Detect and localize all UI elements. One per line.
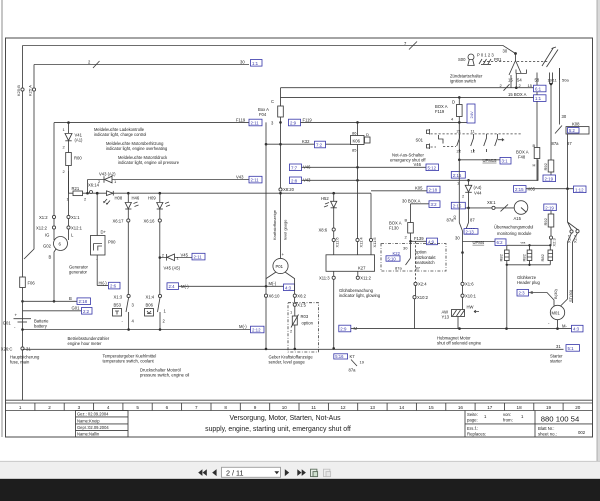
- svg-text:X6:2: X6:2: [297, 294, 306, 299]
- svg-text:X11:6: X11:6: [335, 237, 340, 248]
- svg-text:supply, engine, starting unit,: supply, engine, starting unit, emergancy…: [205, 426, 351, 433]
- svg-text:+: +: [15, 313, 18, 318]
- svg-text:G01: G01: [3, 321, 12, 326]
- svg-text:X12:1: X12:1: [71, 226, 83, 231]
- svg-text:option: option: [302, 320, 314, 325]
- svg-text:K05: K05: [415, 185, 423, 190]
- svg-text:2:2: 2:2: [83, 309, 90, 314]
- svg-text:H46: H46: [132, 196, 140, 201]
- svg-text:12: 12: [471, 148, 476, 153]
- svg-text:indicator light, engine oil pr: indicator light, engine oil pressure: [118, 160, 180, 165]
- svg-text:3: 3: [78, 405, 81, 410]
- svg-text:2:11: 2:11: [251, 121, 260, 126]
- svg-text:31: 31: [26, 346, 31, 351]
- svg-text:20: 20: [575, 405, 581, 410]
- svg-text:6:2: 6:2: [497, 240, 504, 245]
- svg-text:30: 30: [562, 114, 567, 119]
- svg-text:X6:17: X6:17: [113, 218, 125, 223]
- svg-text:G01: G01: [72, 306, 81, 311]
- svg-text:2:13: 2:13: [466, 229, 475, 234]
- svg-text:H: H: [533, 162, 536, 167]
- svg-text:30: 30: [455, 236, 460, 241]
- svg-text:P01: P01: [276, 264, 284, 269]
- svg-text:temperature switch, coolant: temperature switch, coolant: [103, 359, 155, 364]
- svg-text:22: 22: [457, 148, 462, 153]
- svg-text:V44: V44: [474, 191, 482, 196]
- svg-text:X11:3: X11:3: [319, 276, 330, 281]
- svg-text:(A4): (A4): [474, 185, 483, 190]
- svg-text:8: 8: [224, 405, 227, 410]
- svg-text:21: 21: [457, 128, 462, 133]
- svg-text:V46: V46: [303, 164, 311, 169]
- svg-text:engine hour meter: engine hour meter: [68, 341, 103, 346]
- svg-text:30 BOX A: 30 BOX A: [402, 199, 421, 204]
- svg-text:K27: K27: [358, 265, 366, 270]
- svg-text:sheet no.:: sheet no.:: [538, 432, 557, 437]
- svg-text:X1:6: X1:6: [465, 282, 474, 287]
- svg-text:P 0 1 2 3: P 0 1 2 3: [477, 53, 494, 58]
- svg-text:R82: R82: [540, 253, 545, 261]
- svg-text:5:10: 5:10: [388, 256, 397, 261]
- svg-text:5:12: 5:12: [428, 165, 437, 170]
- svg-text:Kraftstoffanzeige: Kraftstoffanzeige: [272, 209, 277, 240]
- svg-text:17: 17: [487, 405, 493, 410]
- svg-text:R03: R03: [301, 314, 309, 319]
- svg-text:7:2: 7:2: [316, 143, 323, 148]
- svg-text:B: B: [533, 143, 536, 148]
- svg-text:G02: G02: [43, 244, 52, 249]
- svg-text:starter: starter: [550, 359, 562, 364]
- svg-text:2:11: 2:11: [194, 255, 203, 260]
- svg-text:2:12: 2:12: [252, 328, 261, 333]
- svg-text:X6:16: X6:16: [144, 218, 156, 223]
- svg-text:R82: R82: [499, 253, 504, 261]
- svg-text:5:16: 5:16: [335, 354, 344, 359]
- svg-text:F48: F48: [518, 155, 526, 160]
- svg-text:Gepr.:02.09.2004: Gepr.:02.09.2004: [77, 425, 109, 430]
- svg-text:V43: V43: [236, 174, 244, 179]
- svg-text:R00: R00: [74, 156, 82, 161]
- svg-text:5:1: 5:1: [568, 346, 575, 351]
- svg-text:V43 (A2): V43 (A2): [99, 172, 116, 177]
- svg-text:10: 10: [282, 405, 288, 410]
- svg-text:Header plug: Header plug: [517, 280, 540, 285]
- svg-text:M(-): M(-): [239, 324, 247, 329]
- svg-text:V45 (A5): V45 (A5): [164, 266, 181, 271]
- svg-text:(A1): (A1): [75, 138, 84, 143]
- svg-text:B: B: [405, 217, 408, 222]
- svg-text:30: 30: [240, 60, 245, 65]
- svg-text:30: 30: [403, 246, 408, 251]
- svg-text:30: 30: [503, 49, 508, 54]
- svg-text:Hi(-): Hi(-): [99, 280, 108, 285]
- svg-text:K7: K7: [350, 354, 356, 359]
- svg-text:ST(50): ST(50): [568, 289, 573, 302]
- svg-text:monitoring module: monitoring module: [497, 231, 532, 236]
- svg-text:M-: M-: [562, 323, 567, 328]
- svg-text:B(30): B(30): [553, 289, 558, 299]
- svg-text:11: 11: [311, 405, 316, 410]
- svg-text:generator: generator: [69, 270, 88, 275]
- svg-text:7:7: 7:7: [291, 165, 298, 170]
- svg-text:2: 2: [48, 405, 51, 410]
- svg-text:2:11: 2:11: [251, 178, 260, 183]
- svg-text:Replaces:: Replaces:: [467, 432, 486, 437]
- svg-text:2:18: 2:18: [79, 299, 88, 304]
- svg-text:18: 18: [517, 405, 523, 410]
- svg-text:15 BOX A: 15 BOX A: [508, 92, 527, 97]
- svg-text:X12:2: X12:2: [36, 226, 48, 231]
- svg-text:2:19: 2:19: [545, 205, 554, 210]
- svg-text:B06: B06: [146, 302, 154, 307]
- svg-text:R82: R82: [522, 253, 527, 261]
- svg-text:indicator light, engine overhe: indicator light, engine overheating: [106, 146, 168, 151]
- svg-text:2:9: 2:9: [340, 327, 347, 332]
- svg-text:pressure switch, engine oil: pressure switch, engine oil: [140, 373, 189, 378]
- svg-text:X1:5: X1:5: [297, 303, 306, 308]
- svg-text:M(-): M(-): [269, 281, 277, 286]
- svg-text:X2:1: X2:1: [573, 234, 578, 243]
- svg-text:19: 19: [546, 405, 552, 410]
- svg-text:Blatt Nr.:: Blatt Nr.:: [538, 426, 554, 431]
- svg-text:V45: V45: [181, 252, 189, 257]
- svg-text:F130: F130: [389, 225, 399, 230]
- svg-text:85: 85: [352, 148, 357, 153]
- svg-text:87: 87: [416, 265, 421, 270]
- svg-text:S00: S00: [458, 57, 466, 62]
- svg-text:87a: 87a: [349, 368, 357, 373]
- svg-text:indicator light, glowing: indicator light, glowing: [339, 293, 381, 298]
- svg-text:X10:1: X10:1: [465, 294, 477, 299]
- svg-text:3:2: 3:2: [431, 202, 438, 207]
- svg-text:4:3: 4:3: [285, 285, 292, 290]
- svg-text:H08: H08: [115, 196, 123, 201]
- svg-text:UPM15: UPM15: [483, 158, 498, 163]
- svg-text:+: +: [282, 252, 285, 257]
- svg-text:R92: R92: [543, 217, 548, 225]
- svg-text:1: 1: [19, 405, 22, 410]
- svg-text:V43: V43: [303, 177, 311, 182]
- svg-text:Name:Kneip: Name:Kneip: [77, 418, 100, 423]
- svg-text:4:3: 4:3: [573, 327, 580, 332]
- svg-text:H09: H09: [148, 196, 156, 201]
- svg-text:X2:4: X2:4: [418, 282, 427, 287]
- svg-text:19: 19: [360, 360, 365, 365]
- svg-text:battery: battery: [34, 324, 48, 329]
- svg-text:S01: S01: [416, 137, 424, 142]
- svg-text:2:9: 2:9: [290, 121, 297, 126]
- svg-text:2:8: 2:8: [291, 178, 298, 183]
- svg-text:880 100 54: 880 100 54: [541, 415, 580, 424]
- svg-text:4: 4: [107, 405, 110, 410]
- svg-text:50a: 50a: [562, 77, 569, 82]
- svg-text:K08: K08: [572, 121, 580, 126]
- svg-text:F119: F119: [435, 109, 445, 114]
- svg-text:87a: 87a: [395, 265, 402, 270]
- svg-text:sender, level gauge: sender, level gauge: [269, 359, 306, 364]
- svg-text:F06: F06: [28, 281, 36, 286]
- svg-text:P00: P00: [108, 240, 116, 245]
- svg-text:UPM4: UPM4: [473, 240, 485, 245]
- svg-text:2:3: 2:3: [519, 291, 526, 296]
- svg-text:87: 87: [470, 218, 475, 223]
- svg-text:X1:4: X1:4: [146, 294, 155, 299]
- svg-text:1:1: 1:1: [535, 96, 542, 101]
- svg-text:fuse, main: fuse, main: [10, 360, 30, 365]
- svg-text:Name:Nallin: Name:Nallin: [77, 432, 100, 437]
- svg-text:B: B: [69, 296, 72, 301]
- svg-text:seatswitch: seatswitch: [415, 260, 435, 265]
- svg-text:Gez.: 02.09.2004: Gez.: 02.09.2004: [77, 412, 109, 417]
- svg-text:F04: F04: [259, 112, 267, 117]
- svg-text:D+: D+: [101, 230, 107, 235]
- svg-text:5: 5: [136, 405, 139, 410]
- svg-text:F119: F119: [236, 117, 246, 122]
- svg-text:2 / 11: 2 / 11: [226, 468, 243, 477]
- svg-text:2:16: 2:16: [453, 204, 462, 209]
- svg-text:X2:3: X2:3: [552, 237, 557, 246]
- svg-text:F119: F119: [303, 117, 313, 122]
- svg-text:shut off solenoid engine: shut off solenoid engine: [437, 340, 482, 345]
- svg-text:Y13: Y13: [442, 315, 450, 320]
- svg-text:F139: F139: [414, 236, 424, 241]
- svg-text:X11:5: X11:5: [372, 237, 377, 248]
- svg-text:Ers.f.:: Ers.f.:: [467, 426, 478, 431]
- svg-text:X6:14: X6:14: [88, 183, 100, 188]
- svg-text:Überwachungsmodul: Überwachungsmodul: [494, 224, 533, 229]
- svg-text:2:15: 2:15: [515, 187, 524, 192]
- svg-text:87a: 87a: [552, 141, 560, 146]
- svg-text:54: 54: [517, 78, 522, 83]
- svg-text:vea: vea: [521, 240, 526, 244]
- svg-text:16: 16: [458, 405, 464, 410]
- svg-text:14: 14: [399, 405, 405, 410]
- svg-text:3:1: 3:1: [502, 159, 509, 164]
- svg-text:X1:2: X1:2: [39, 215, 48, 220]
- svg-text:Seite:: Seite:: [467, 412, 478, 417]
- svg-text:R92: R92: [543, 162, 548, 170]
- svg-text:D: D: [366, 132, 369, 137]
- svg-text:12: 12: [340, 405, 346, 410]
- svg-text:2:18: 2:18: [429, 188, 438, 193]
- svg-text:H52: H52: [321, 196, 329, 201]
- svg-text:R21: R21: [72, 186, 80, 191]
- svg-text:9: 9: [254, 405, 257, 410]
- svg-text:6: 6: [166, 405, 169, 410]
- svg-text:6:1: 6:1: [535, 87, 542, 92]
- svg-text:level gauge: level gauge: [283, 219, 288, 240]
- svg-text:X26:C: X26:C: [1, 346, 13, 351]
- svg-text:M01: M01: [552, 311, 561, 316]
- svg-text:15: 15: [528, 83, 533, 88]
- svg-text:K25:A: K25:A: [28, 85, 33, 96]
- svg-text:indicator light, charge contro: indicator light, charge control: [94, 132, 146, 137]
- svg-text:page:: page:: [467, 417, 478, 422]
- svg-text:X11:4: X11:4: [358, 237, 363, 248]
- svg-text:X1:1: X1:1: [71, 215, 80, 220]
- svg-text:1:12: 1:12: [575, 187, 584, 192]
- svg-text:5:2: 5:2: [569, 128, 575, 133]
- svg-text:B53: B53: [114, 302, 122, 307]
- svg-text:30: 30: [452, 215, 457, 220]
- svg-text:A15: A15: [514, 216, 522, 221]
- svg-text:24V: 24V: [469, 111, 474, 118]
- svg-text:ignition switch: ignition switch: [450, 79, 477, 84]
- svg-text:K06: K06: [353, 139, 361, 144]
- svg-text:X8:6: X8:6: [319, 227, 328, 232]
- svg-text:D: D: [452, 99, 455, 104]
- svg-text:X6:1: X6:1: [487, 200, 496, 205]
- svg-text:2:19: 2:19: [545, 176, 554, 181]
- svg-text:from:: from:: [503, 417, 513, 422]
- svg-text:7: 7: [195, 405, 198, 410]
- svg-text:X11:2: X11:2: [360, 276, 371, 281]
- svg-text:HW: HW: [467, 305, 474, 310]
- svg-text:V46: V46: [414, 162, 422, 167]
- svg-text:15: 15: [429, 405, 435, 410]
- svg-text:86: 86: [352, 130, 357, 135]
- svg-text:X8:20: X8:20: [283, 187, 295, 192]
- svg-text:K32: K32: [302, 139, 310, 144]
- svg-text:emergancy shut off: emergancy shut off: [390, 158, 426, 163]
- svg-text:X10:2: X10:2: [417, 295, 429, 300]
- svg-text:K22: K22: [393, 251, 401, 256]
- svg-text:X1:3: X1:3: [114, 294, 123, 299]
- svg-text:2:4: 2:4: [169, 284, 176, 289]
- svg-text:K25:B: K25:B: [16, 85, 21, 96]
- svg-text:C: C: [271, 99, 274, 104]
- svg-text:IG: IG: [45, 233, 49, 238]
- svg-text:1:1: 1:1: [252, 61, 259, 66]
- svg-text:2:16: 2:16: [453, 173, 462, 178]
- svg-text:von:: von:: [503, 412, 511, 417]
- svg-text:002: 002: [578, 430, 586, 435]
- svg-text:2:6: 2:6: [110, 284, 117, 289]
- svg-text:31: 31: [556, 344, 561, 349]
- svg-text:13: 13: [370, 405, 376, 410]
- svg-text:Versorgung, Motor, Starten, No: Versorgung, Motor, Starten, Not-Aus: [229, 415, 341, 422]
- svg-text:B: B: [49, 255, 52, 260]
- svg-text:X6:10: X6:10: [269, 294, 281, 299]
